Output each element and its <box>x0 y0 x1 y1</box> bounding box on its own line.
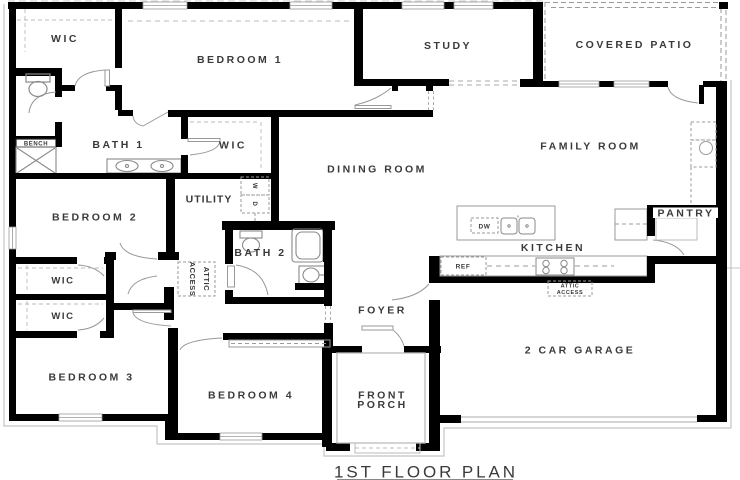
svg-text:WIC: WIC <box>51 276 74 287</box>
svg-text:PORCH: PORCH <box>357 399 407 411</box>
svg-text:WIC: WIC <box>219 140 247 152</box>
svg-text:ATTIC: ATTIC <box>202 267 211 292</box>
svg-text:REF: REF <box>456 264 471 271</box>
svg-text:STUDY: STUDY <box>424 40 472 52</box>
svg-text:BEDROOM 4: BEDROOM 4 <box>208 390 294 402</box>
svg-text:FOYER: FOYER <box>358 305 407 317</box>
svg-text:WIC: WIC <box>51 311 74 322</box>
svg-text:2 CAR GARAGE: 2 CAR GARAGE <box>525 345 636 357</box>
svg-text:BATH 1: BATH 1 <box>92 139 144 151</box>
svg-text:BEDROOM 3: BEDROOM 3 <box>48 372 134 384</box>
svg-text:BEDROOM 1: BEDROOM 1 <box>197 54 283 66</box>
svg-text:DINING ROOM: DINING ROOM <box>327 164 427 176</box>
svg-text:UTILITY: UTILITY <box>186 194 233 206</box>
svg-text:FAMILY ROOM: FAMILY ROOM <box>540 141 640 153</box>
svg-text:ACCESS: ACCESS <box>188 262 197 297</box>
svg-text:COVERED PATIO: COVERED PATIO <box>576 39 694 51</box>
svg-text:DW: DW <box>478 224 490 231</box>
svg-text:D: D <box>251 202 257 207</box>
svg-text:BEDROOM 2: BEDROOM 2 <box>52 212 138 224</box>
svg-text:ACCESS: ACCESS <box>557 290 584 296</box>
svg-text:1ST FLOOR PLAN: 1ST FLOOR PLAN <box>334 463 518 480</box>
svg-text:BATH 2: BATH 2 <box>234 247 286 259</box>
svg-text:PANTRY: PANTRY <box>658 208 715 220</box>
svg-text:ATTIC: ATTIC <box>561 284 580 290</box>
svg-text:KITCHEN: KITCHEN <box>521 242 585 254</box>
svg-text:W: W <box>251 183 257 189</box>
svg-text:WIC: WIC <box>51 33 79 45</box>
